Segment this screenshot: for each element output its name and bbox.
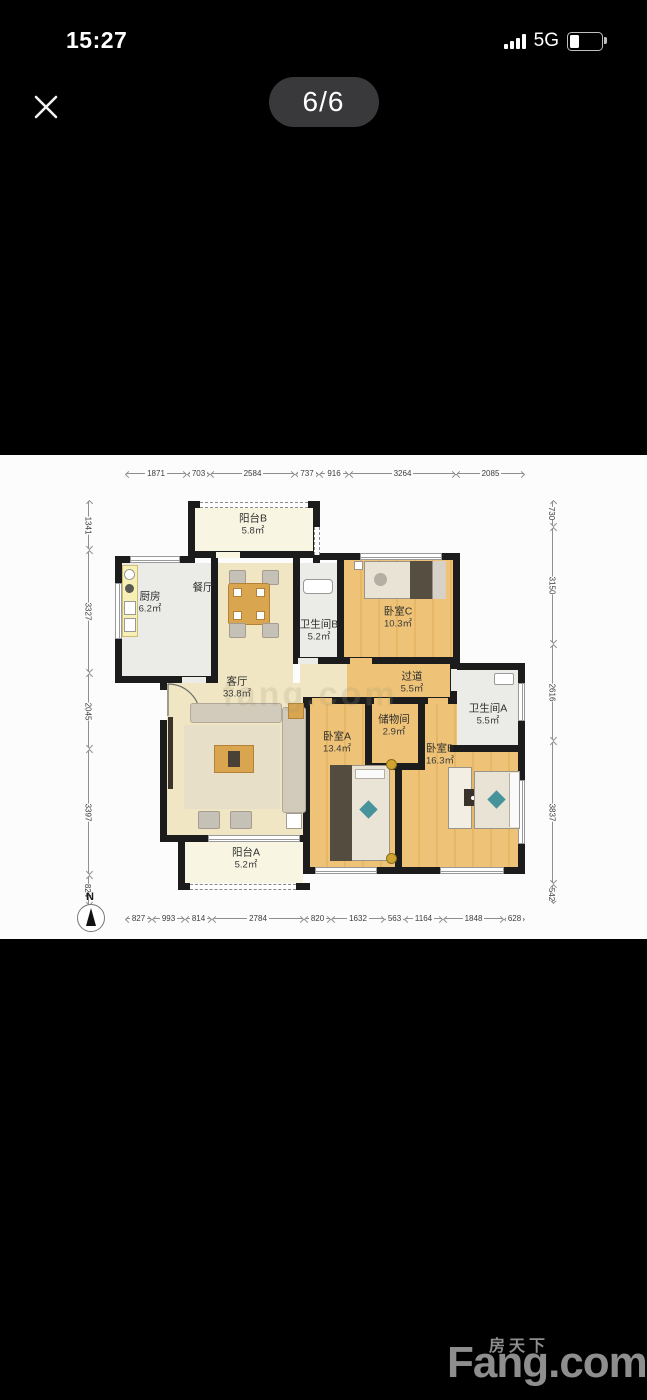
dining-plate [233,611,242,620]
wall [211,556,218,683]
battery-icon [567,32,603,51]
kitchen-sink [124,569,135,580]
bed-b-pillow [509,773,519,827]
fang-logo: 房天下 Fang.com [447,1332,647,1396]
wall [293,556,300,664]
window [518,683,525,721]
phone-screen: 15:27 5G 6/6 1871 703 2584 737 916 3264 … [0,0,647,1400]
room-label-bedroom-b: 卧室B16.3㎡ [426,743,454,768]
balcony-window-dashed [190,884,296,890]
room-label-balcony-a: 阳台A5.2㎡ [232,847,260,872]
side-box [286,813,302,829]
wall [160,676,167,690]
network-label: 5G [534,30,559,52]
wall [293,657,460,664]
door-opening [350,658,372,664]
window [440,867,504,874]
bed-c-duvet [410,561,432,599]
dimensions-bottom: 827 993 814 2784 820 1632 563 1164 1848 … [125,912,525,924]
balcony-window-dashed [314,527,320,555]
bed-a-duvet [330,765,352,861]
window [115,583,122,639]
wall-lamp [386,853,397,864]
balcony-window-dashed [200,502,308,508]
page-indicator: 6/6 [269,77,379,127]
dimensions-right: 730 3150 2616 3837 542 [546,500,558,904]
door-opening [451,669,457,691]
compass-icon [77,904,105,932]
dining-plate [256,588,265,597]
wall [418,697,425,770]
wall [453,553,460,670]
signal-bars-icon [504,34,526,49]
kitchen-appliance [124,618,136,632]
nightstand [354,561,363,570]
wall [178,841,185,890]
room-label-bedroom-c: 卧室C10.3㎡ [384,606,413,631]
bath-sink [494,673,514,685]
kitchen-appliance [124,601,136,615]
room-label-dining: 餐厅 [193,581,214,594]
wall-lamp [386,759,397,770]
kitchen-stove [125,584,134,593]
armchair [230,811,252,829]
room-label-storage: 储物间2.9㎡ [378,714,410,739]
bed-a-pillow [355,769,385,779]
door-opening [428,698,448,704]
window [208,835,300,842]
window [315,867,377,874]
room-label-living: 客厅33.8㎡ [223,676,251,701]
floorplan-image[interactable]: 1871 703 2584 737 916 3264 2085 827 993 … [0,455,647,939]
wall [188,501,195,558]
wall [337,553,344,664]
tv-panel [168,717,173,789]
compass-north-label: N [86,891,94,903]
bed-c-pillow [374,573,387,586]
wall [450,663,525,670]
dining-plate [256,611,265,620]
page-indicator-text: 6/6 [303,86,345,118]
door-opening [216,552,240,558]
fang-logo-english: Fang.com [447,1338,647,1388]
compass-arrow [86,908,96,926]
bathtub [303,579,333,594]
status-bar: 15:27 5G [0,0,647,62]
wall [188,551,320,558]
dining-plate [233,588,242,597]
dimensions-left: 1341 3327 2045 3397 824 [82,500,94,906]
room-label-bedroom-a: 卧室A13.4㎡ [323,731,351,756]
close-icon[interactable] [30,91,62,123]
status-time: 15:27 [66,27,127,54]
room-label-bath-a: 卫生间A5.5㎡ [469,703,508,728]
dimensions-top: 1871 703 2584 737 916 3264 2085 [125,467,525,479]
room-label-bath-b: 卫生间B5.2㎡ [300,619,339,644]
wall [160,720,167,842]
armchair [198,811,220,829]
wall [450,745,525,752]
room-label-kitchen: 厨房6.2㎡ [139,591,162,616]
wall [296,883,310,890]
dining-chair [229,623,246,638]
sofa-chaise [282,707,306,813]
room-label-balcony-b: 阳台B5.8㎡ [239,513,267,538]
door-opening [298,658,318,664]
bed-c-headboard [432,561,446,599]
room-label-hallway: 过道5.5㎡ [401,671,424,696]
status-icons: 5G [504,30,603,52]
table-decor [228,751,240,767]
window [360,553,442,560]
window [130,556,180,563]
dining-chair [262,623,279,638]
